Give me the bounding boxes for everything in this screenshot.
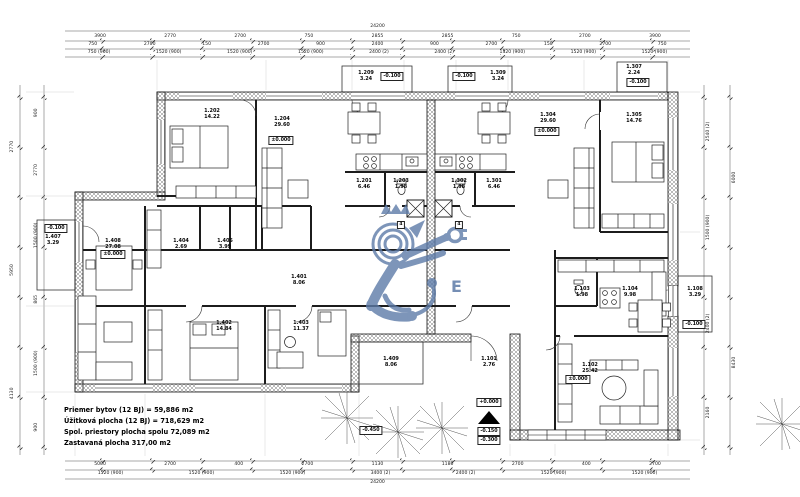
shaft-badge: 4 — [397, 221, 405, 229]
dimension-value: 400 — [581, 462, 592, 467]
elevation-badge: -0.100 — [44, 224, 67, 233]
dimension-value: 1500 (900) — [34, 223, 39, 249]
dimension-value: 4130 — [10, 387, 15, 399]
room-label: 1.30429.60 — [540, 112, 556, 124]
dimension-value: 2160 — [706, 407, 711, 419]
room-area: 2.24 — [626, 70, 642, 76]
room-area: 3.24 — [358, 76, 374, 82]
room-label: 1.20214.22 — [204, 108, 220, 120]
dimension-value: 2770 — [34, 164, 39, 176]
wardrobe — [176, 186, 256, 198]
room-area: 29.60 — [274, 122, 290, 128]
summary-line-3: Spol. priestory plocha spolu 72,089 m2 — [64, 427, 210, 438]
dimension-value: 900 — [34, 423, 39, 432]
dimension-value: 2700 — [648, 462, 662, 467]
room-area: 14.22 — [204, 114, 220, 120]
dimension-value: 1520 (900) — [570, 50, 598, 55]
coffee-table — [104, 322, 132, 342]
dimension-value: 2700 — [578, 34, 592, 39]
dimension-value: 1180 — [441, 462, 455, 467]
dimension-value: 5950 — [10, 264, 15, 276]
room-label: 1.1083.29 — [687, 286, 703, 298]
dimension-value: 2770 — [163, 34, 177, 39]
dimension-value: 24200 — [369, 24, 386, 29]
room-area: 3.24 — [490, 76, 506, 82]
room-label: 1.3016.46 — [486, 178, 502, 190]
kitchen-counter — [147, 210, 161, 268]
floor-plan-page: E 24200 39002770270075028552855750270039… — [0, 0, 800, 497]
room-label: 1.30514.76 — [626, 112, 642, 124]
dimension-value: 2855 — [371, 34, 385, 39]
dimension-chain-right-1: 21602400 (2)1500 (900)2540 (2) — [706, 85, 711, 455]
dimension-value: 1520 (900) — [279, 471, 307, 476]
dimension-value: 2855 — [441, 34, 455, 39]
dimension-value: 2700 — [485, 42, 499, 47]
elevation-badge: -0.100 — [380, 72, 403, 81]
entrance-triangle — [478, 411, 500, 424]
coffee-table — [288, 180, 308, 198]
elevation-badge: -0.100 — [682, 320, 705, 329]
room-area: 14.84 — [216, 326, 232, 332]
room-label: 1.4042.69 — [173, 238, 189, 250]
room-label: 1.20429.60 — [274, 116, 290, 128]
summary-line-2: Úžitková plocha (12 BJ) = 718,629 m2 — [64, 416, 210, 427]
dimension-chain-bottom-2: 1520 (900)1520 (900)1520 (900)3400 (2)24… — [65, 471, 690, 476]
room-area: 25.42 — [582, 368, 598, 374]
dimension-value: 2400 (2) — [706, 314, 711, 334]
dimension-value: 2770 — [10, 141, 15, 153]
dimension-chain-top-2: 3900277027007502855285575027003900 — [65, 34, 690, 39]
shaft-badge: 4 — [455, 221, 463, 229]
elevation-badge: -0.100 — [626, 78, 649, 87]
room-area: 9.98 — [622, 292, 638, 298]
watermark-letter: E — [451, 277, 462, 296]
room-label: 1.3093.24 — [490, 70, 506, 82]
room-area: 8.06 — [291, 280, 307, 286]
dimension-chain-top-1: 24200 — [65, 24, 690, 29]
dimension-value: 2540 (2) — [706, 122, 711, 142]
bed — [170, 126, 228, 168]
dimension-value: 6000 — [732, 172, 737, 184]
elevation-badge: ±0.000 — [534, 127, 559, 136]
dimension-value: 24200 — [369, 480, 386, 485]
dimension-chain-bottom-1: 5000270040027001130118027004002700 — [65, 462, 690, 467]
sofa — [574, 148, 594, 228]
room-area: 11.37 — [293, 326, 309, 332]
area-summary: Priemer bytov (12 BJ) = 59,886 m2 Úžitko… — [64, 405, 210, 449]
room-area: 6.46 — [486, 184, 502, 190]
dimension-value: 1520 (900) — [226, 50, 254, 55]
bed — [612, 142, 664, 182]
room-label: 1.4073.29 — [45, 234, 61, 246]
room-label: 1.1012.76 — [481, 356, 497, 368]
dimension-value: 750 — [303, 34, 314, 39]
dimension-value: 750 — [511, 34, 522, 39]
dimension-value: 1500 (900) — [706, 215, 711, 241]
room-label: 1.2093.24 — [358, 70, 374, 82]
dimension-value: 2700 — [143, 42, 157, 47]
desk — [277, 337, 303, 369]
dimension-value: 1520 (900) — [97, 471, 125, 476]
room-area: 1.98 — [393, 184, 409, 190]
room-label: 1.40214.84 — [216, 320, 232, 332]
room-label: 1.3021.98 — [451, 178, 467, 190]
dimension-value: 1500 (900) — [34, 350, 39, 376]
dining-table — [478, 103, 510, 143]
room-area: 3.29 — [687, 292, 703, 298]
room-area: 14.76 — [626, 118, 642, 124]
room-area: 3.29 — [45, 240, 61, 246]
dimension-value: 2700 — [257, 42, 271, 47]
room-label: 1.4018.06 — [291, 274, 307, 286]
room-area: 2.69 — [173, 244, 189, 250]
elevation-badge: -0.150 — [477, 427, 500, 436]
room-area: 1.98 — [451, 184, 467, 190]
coffee-table — [548, 180, 568, 198]
dimension-chain-left-1: 413059502770 — [10, 85, 15, 455]
room-label: 1.2016.46 — [356, 178, 372, 190]
sofa — [262, 148, 282, 228]
dimension-value: 3900 — [93, 34, 107, 39]
summary-line-4: Zastavaná plocha 317,00 m2 — [64, 438, 210, 449]
room-area: 29.60 — [540, 118, 556, 124]
dimension-chain-top-4: 750 (900)1520 (900)1520 (900)1520 (900)2… — [65, 50, 690, 55]
dimension-value: 900 — [34, 108, 39, 117]
dimension-value: 5000 — [93, 462, 107, 467]
elevation-badge: -0.100 — [452, 72, 475, 81]
dimension-value: 8430 — [732, 357, 737, 369]
dimension-value: 1520 (900) — [641, 50, 669, 55]
wardrobe — [148, 310, 162, 380]
stove — [600, 288, 620, 308]
dining-table — [348, 103, 380, 143]
dimension-value: 750 (900) — [87, 50, 112, 55]
dimension-chain-left-2: 9001500 (900)8651500 (900)2770900 — [34, 85, 39, 455]
dimension-value: 2700 — [163, 462, 177, 467]
elevation-badge: +0.000 — [476, 398, 501, 407]
room-label: 1.40827.08 — [105, 238, 121, 250]
dimension-value: 3900 — [648, 34, 662, 39]
room-area: 8.06 — [383, 362, 399, 368]
summary-line-1: Priemer bytov (12 BJ) = 59,886 m2 — [64, 405, 210, 416]
room-label: 1.2031.98 — [393, 178, 409, 190]
room-label: 1.1049.98 — [622, 286, 638, 298]
elevation-badge: ±0.000 — [100, 250, 125, 259]
room-label: 1.40311.37 — [293, 320, 309, 332]
room-area: 1.98 — [574, 292, 590, 298]
dimension-value: 1520 (900) — [631, 471, 659, 476]
room-area: 3.99 — [217, 244, 233, 250]
dimension-value: 2700 — [598, 42, 612, 47]
wardrobe — [602, 214, 664, 228]
dimension-value: 2400 (2) — [433, 50, 455, 55]
dimension-value: 2400 (2) — [368, 50, 390, 55]
dimension-value: 1520 (900) — [499, 50, 527, 55]
dimension-value: 2700 — [511, 462, 525, 467]
dimension-chain-top-3: 75027001502700900240090027001502700750 — [65, 42, 690, 47]
dimension-value: 750 — [87, 42, 98, 47]
dimension-value: 150 — [543, 42, 554, 47]
room-area: 6.46 — [356, 184, 372, 190]
dimension-value: 750 — [657, 42, 668, 47]
dimension-value: 2700 — [233, 34, 247, 39]
dimension-chain-right-2: 84306000 — [732, 85, 737, 455]
room-label: 1.4098.06 — [383, 356, 399, 368]
room-area: 2.76 — [481, 362, 497, 368]
dimension-value: 2700 — [301, 462, 315, 467]
dimension-value: 150 — [201, 42, 212, 47]
sink — [440, 157, 452, 166]
elevation-badge: ±0.000 — [565, 375, 590, 384]
dimension-value: 2400 (2) — [455, 471, 477, 476]
dimension-value: 900 — [429, 42, 440, 47]
dimension-value: 1520 (900) — [540, 471, 568, 476]
dimension-value: 3400 (2) — [370, 471, 392, 476]
watermark-lion-logo — [371, 204, 467, 321]
dimension-value: 1520 (900) — [155, 50, 183, 55]
elevation-badge: ±0.000 — [268, 136, 293, 145]
dimension-value: 1520 (900) — [297, 50, 325, 55]
elevation-badge: -0.300 — [477, 436, 500, 445]
dimension-value: 865 — [34, 295, 39, 304]
dimension-value: 2400 — [371, 42, 385, 47]
room-label: 1.10225.42 — [582, 362, 598, 374]
dimension-value: 400 — [233, 462, 244, 467]
room-label: 1.1031.98 — [574, 286, 590, 298]
elevation-badge: -0.450 — [359, 426, 382, 435]
sink — [406, 157, 418, 166]
round-table — [602, 376, 626, 400]
dimension-chain-bottom-3: 24200 — [65, 480, 690, 485]
room-label: 1.4053.99 — [217, 238, 233, 250]
dimension-value: 1520 (900) — [188, 471, 216, 476]
room-label: 1.3072.24 — [626, 64, 642, 76]
bed — [318, 310, 346, 356]
dimension-value: 1130 — [371, 462, 385, 467]
dimension-value: 900 — [315, 42, 326, 47]
